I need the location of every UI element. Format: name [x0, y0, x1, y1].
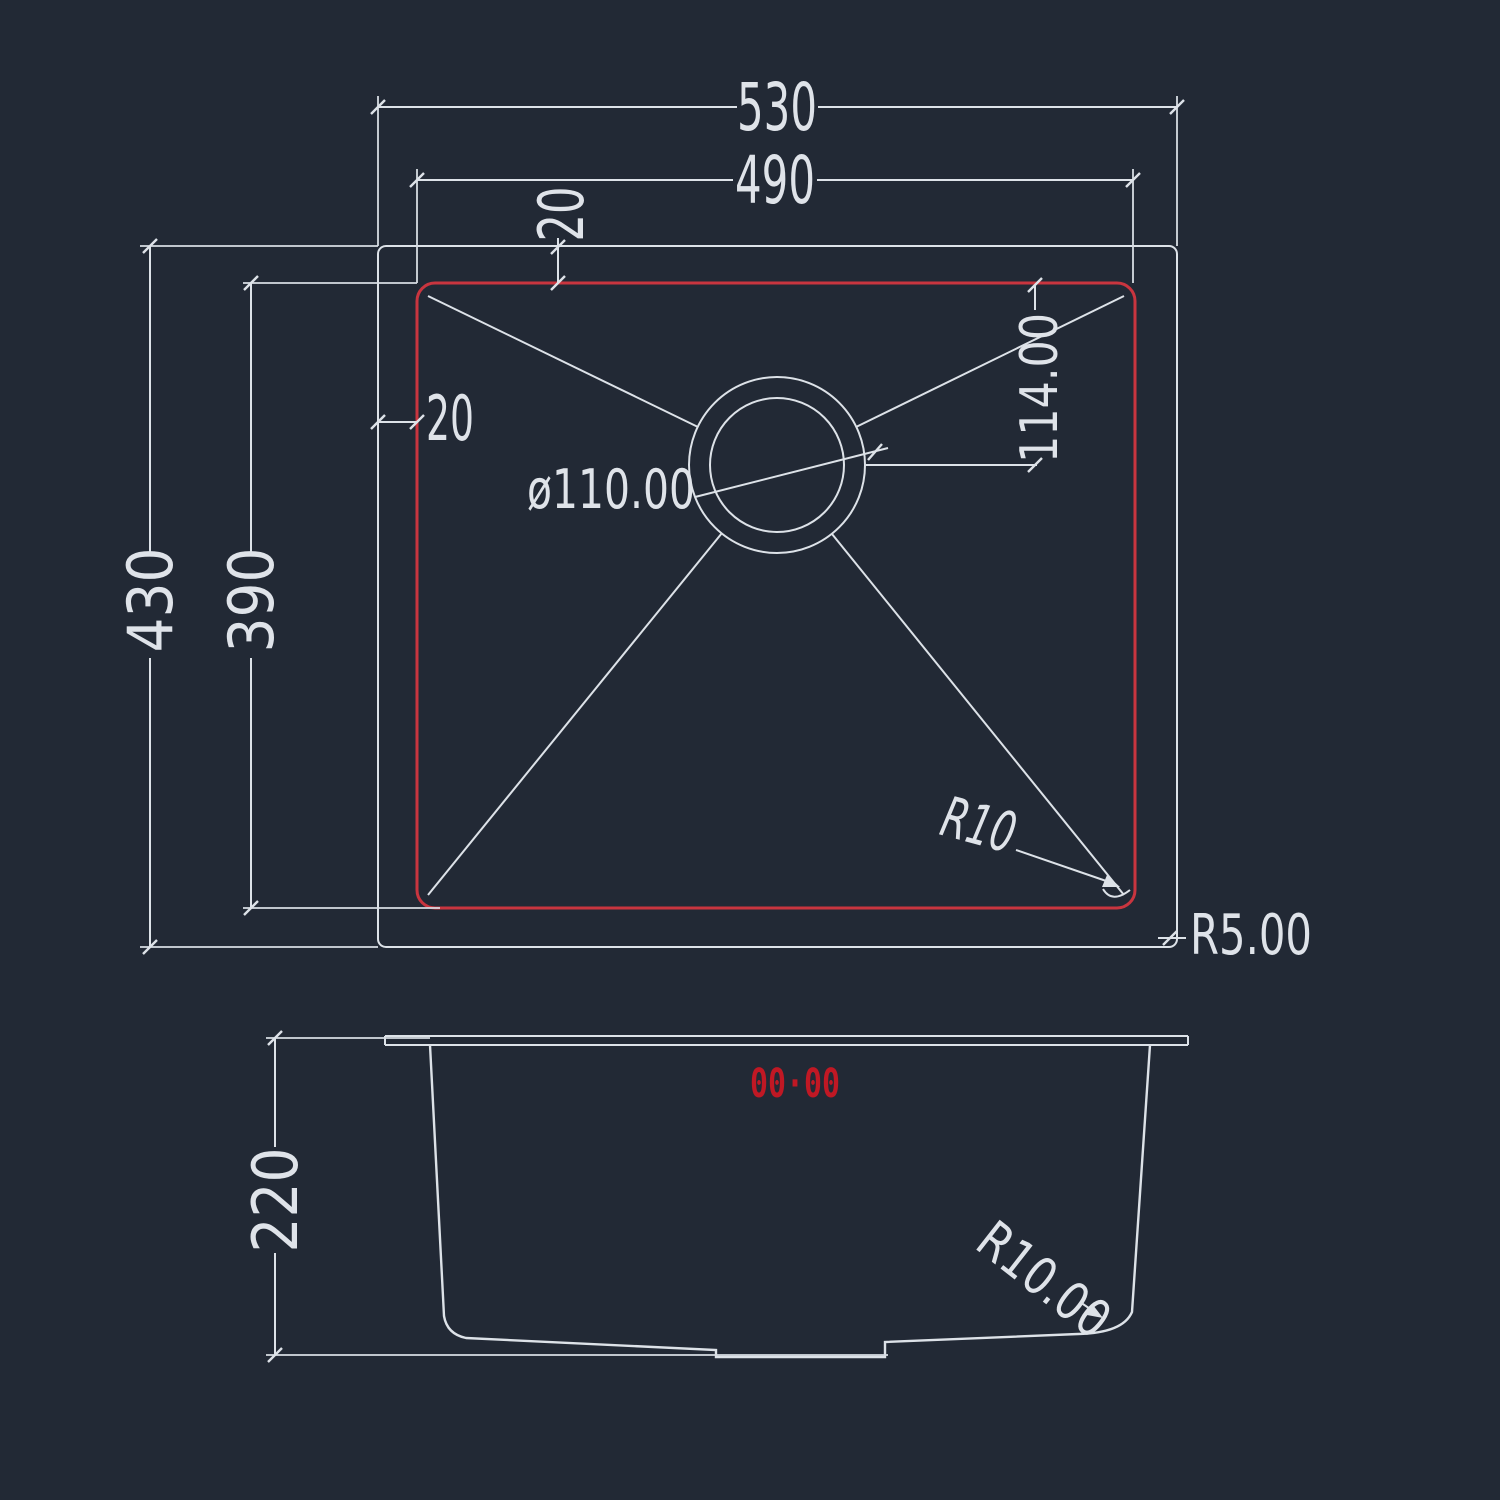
section-view: 220 R10.00 00·00: [239, 1031, 1188, 1362]
dim-bowl-depth: 390: [215, 276, 440, 915]
dim-r10-00-label: R10.00: [965, 1210, 1122, 1351]
drain-diameter-leader: [695, 448, 888, 497]
diagonal-top-right: [856, 296, 1124, 427]
drain-outer-circle: [689, 377, 865, 553]
dim-drain-offset: 114.00: [1010, 278, 1070, 472]
r10-arrowhead: [1102, 875, 1120, 887]
red-marking-text: 00·00: [750, 1061, 840, 1107]
dim-430-label: 430: [114, 548, 187, 653]
dim-530-label: 530: [737, 69, 817, 146]
dim-bowl-corner-radius: R10: [934, 785, 1130, 897]
dim-114-label: 114.00: [1010, 313, 1070, 463]
dim-drain-diameter-label: ø110.00: [527, 458, 695, 521]
dim-r10-label: R10: [934, 785, 1022, 867]
dim-20-left-label: 20: [426, 382, 474, 455]
top-view: 530 490 20 20: [114, 69, 1312, 968]
dim-left-offset: 20: [371, 382, 474, 455]
dim-bowl-width: 490: [410, 142, 1140, 283]
dim-top-offset: 20: [525, 187, 598, 291]
dim-r5-label: R5.00: [1190, 903, 1312, 968]
dim-outer-corner-radius: R5.00: [1158, 903, 1312, 968]
diagonal-bottom-left: [428, 533, 722, 895]
cad-drawing-canvas: 530 490 20 20: [0, 0, 1500, 1500]
dim-bottom-corner-radius: R10.00: [965, 1210, 1122, 1351]
dim-490-label: 490: [735, 142, 815, 219]
dim-220-label: 220: [239, 1148, 312, 1253]
sink-technical-drawing: 530 490 20 20: [0, 0, 1500, 1500]
dim-390-label: 390: [215, 548, 288, 653]
section-flange: [385, 1036, 1188, 1045]
dim-20-top-label: 20: [525, 187, 598, 242]
r10-fillet-arc: [1103, 889, 1130, 897]
